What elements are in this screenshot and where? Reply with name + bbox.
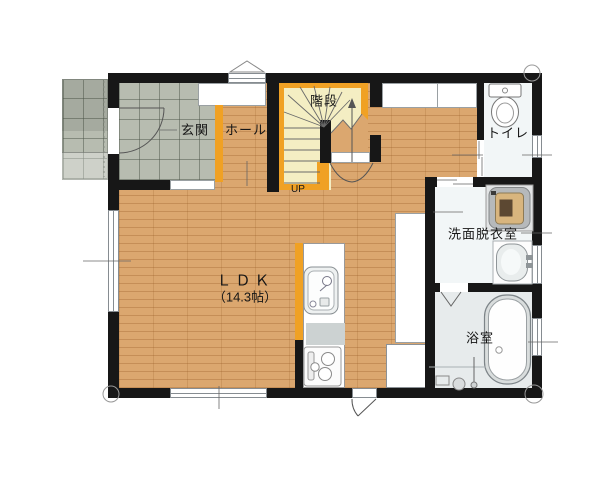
toilet-door-gap	[477, 140, 484, 177]
stairs-frame-top	[279, 83, 368, 88]
wall-bath-left	[425, 292, 435, 398]
bathroom-door-gap	[440, 283, 468, 292]
washroom-label: 洗面脱衣室	[448, 228, 518, 241]
stairs-label: 階段	[310, 95, 338, 108]
stairs-newel-post	[320, 120, 331, 163]
entrance-door-gap	[108, 108, 119, 154]
stairs-up-label: UP	[291, 185, 305, 195]
genkan-hall-partition	[215, 105, 223, 182]
back-door-gap	[352, 388, 377, 398]
wall-washroom-left	[425, 177, 435, 292]
stairs-frame-right	[361, 84, 368, 125]
wall-stairs-right	[370, 73, 382, 107]
toilet-label: トイレ	[487, 127, 529, 140]
hall-label: ホール	[225, 124, 267, 137]
vent-triangle	[230, 61, 264, 72]
kitchen-counter	[303, 243, 345, 388]
ldk-label: ＬＤＫ	[216, 274, 273, 289]
upper-closet	[382, 83, 477, 108]
bathroom-label: 浴室	[466, 332, 494, 345]
genkan-step	[170, 180, 215, 190]
porch-step	[62, 152, 108, 180]
window-washroom	[532, 245, 542, 284]
window-top	[228, 73, 266, 83]
wall-genkan-south	[108, 180, 170, 190]
wall-stairs-left	[267, 73, 279, 192]
pantry-strip	[395, 213, 427, 343]
kitchen-counter-shadow	[306, 323, 345, 345]
refrigerator-space	[386, 344, 426, 388]
window-toilet	[532, 135, 542, 158]
stairs-threshold	[331, 152, 370, 163]
window-bathroom	[532, 318, 542, 356]
window-ldk-west	[108, 210, 119, 312]
stairs-frame-left	[279, 83, 284, 190]
kitchen-half-wall	[295, 243, 303, 340]
ldk-area-label: （14.3帖）	[213, 291, 277, 304]
washroom-door-gap	[437, 177, 473, 187]
upper-closet-divider	[437, 84, 438, 107]
wall-toilet-left	[477, 73, 484, 140]
back-door	[352, 399, 376, 416]
porch-shadow	[62, 79, 108, 131]
window-ldk-south	[170, 388, 267, 398]
genkan-label: 玄関	[181, 124, 209, 137]
stairs-door-post	[370, 135, 381, 162]
kitchen-half-wall-lower	[295, 340, 303, 388]
floor-plan: 玄関 ホール 階段 UP トイレ 洗面脱衣室 浴室 ＬＤＫ （14.3帖）	[0, 0, 615, 477]
stairs-post	[317, 162, 329, 190]
shoe-cabinet	[198, 83, 266, 106]
